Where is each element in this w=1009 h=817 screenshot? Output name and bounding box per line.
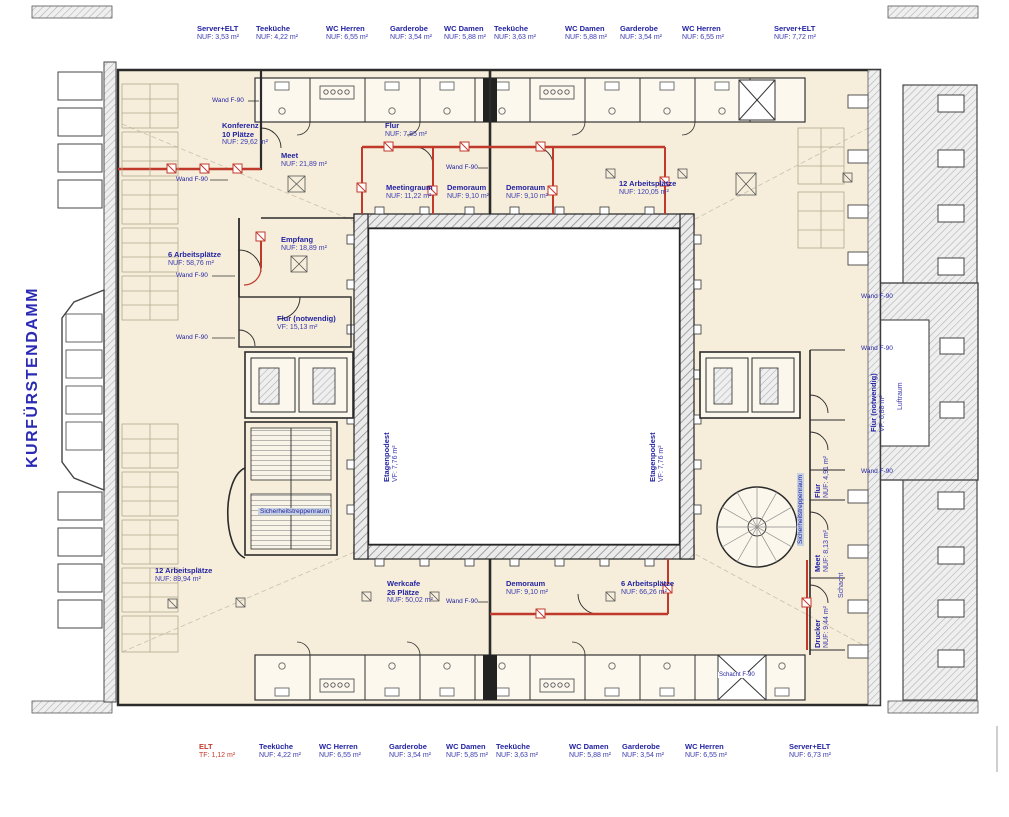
bottom-strip-label-teekueche: TeekücheNUF: 4,22 m² [259, 742, 301, 760]
bottom-strip-label-wc-herren-2: WC HerrenNUF: 6,55 m² [685, 742, 727, 760]
room-label-meet-nw: Meet NUF: 21,89 m² [281, 152, 327, 169]
bottom-strip-label-garderobe-2: GarderobeNUF: 3,54 m² [622, 742, 664, 760]
bottom-strip-label-teekueche-2: TeekücheNUF: 3,63 m² [496, 742, 538, 760]
room-label-etagenpodest-west: Etagenpodest VF: 7,76 m² [383, 432, 400, 482]
floorplan-page: KURFÜRSTENDAMM Server+ELTNUF: 3,53 m² Te… [0, 0, 1009, 817]
top-strip-label-wc-damen-2: WC DamenNUF: 5,88 m² [565, 24, 607, 42]
bottom-strip-label-server-elt: Server+ELTNUF: 6,73 m² [789, 742, 831, 760]
floorplan-drawing [0, 0, 1009, 817]
room-label-12-arbeitsplaetze-nord: 12 Arbeitsplätze NUF: 120,05 m² [619, 180, 676, 197]
room-label-werkcafe: Werkcafe 26 Plätze NUF: 50,02 m² [387, 580, 433, 606]
sicherheitstreppenraum-label-ost: Sicherheitstreppenraum [797, 473, 804, 546]
room-label-schacht: Schacht [838, 573, 847, 598]
wand-f90-label: Wand F-90 [446, 598, 478, 605]
room-label-flur-notwendig-west: Flur (notwendig) VF: 15,13 m² [277, 315, 336, 332]
room-label-12-arbeitsplaetze-sued: 12 Arbeitsplätze NUF: 89,94 m² [155, 567, 212, 584]
courtyard-walls [354, 214, 694, 559]
wand-f90-label: Wand F-90 [212, 97, 244, 104]
room-label-flur-ost: Flur NUF: 4,91 m² [814, 456, 831, 498]
bottom-strip-label-wc-damen-2: WC DamenNUF: 5,88 m² [569, 742, 611, 760]
top-strip-label-garderobe: GarderobeNUF: 3,54 m² [390, 24, 432, 42]
wand-f90-label: Wand F-90 [176, 176, 208, 183]
left-facade [58, 62, 116, 702]
street-label: KURFÜRSTENDAMM [24, 287, 42, 468]
room-label-meetingraum: Meetingraum NUF: 11,22 m² [386, 184, 433, 201]
room-label-demoraum-sued: Demoraum NUF: 9,10 m² [506, 580, 548, 597]
sicherheitstreppenraum-label-west: Sicherheitstreppenraum [258, 508, 331, 515]
wand-f90-label: Wand F-90 [861, 468, 893, 475]
room-label-demoraum-2: Demoraum NUF: 9,10 m² [506, 184, 548, 201]
wand-f90-label: Wand F-90 [861, 345, 893, 352]
room-label-flur-top: Flur NUF: 7,85 m² [385, 122, 427, 139]
room-label-drucker: Drucker NUF: 9,44 m² [814, 606, 831, 648]
bottom-strip-label-wc-herren: WC HerrenNUF: 6,55 m² [319, 742, 361, 760]
wand-f90-label: Wand F-90 [176, 272, 208, 279]
room-label-konferenz: Konferenz 10 Plätze NUF: 29,62 m² [222, 122, 268, 148]
bottom-strip-label-garderobe: GarderobeNUF: 3,54 m² [389, 742, 431, 760]
courtyard-pilasters [347, 207, 701, 566]
wand-f90-label: Wand F-90 [861, 293, 893, 300]
wand-f90-label: Wand F-90 [176, 334, 208, 341]
top-strip-label-teekueche-2: TeekücheNUF: 3,63 m² [494, 24, 536, 42]
room-label-6-arbeitsplaetze-sued: 6 Arbeitsplätze NUF: 66,26 m² [621, 580, 674, 597]
top-strip-label-garderobe-2: GarderobeNUF: 3,54 m² [620, 24, 662, 42]
top-strip-label-wc-herren: WC HerrenNUF: 6,55 m² [326, 24, 368, 42]
schacht-f90-label: Schacht F-90 [718, 672, 756, 678]
bottom-strip-label-wc-damen: WC DamenNUF: 5,85 m² [446, 742, 488, 760]
room-label-6-arbeitsplaetze-west: 6 Arbeitsplätze NUF: 58,76 m² [168, 251, 221, 268]
top-strip-label-server-elt: Server+ELTNUF: 3,53 m² [197, 24, 239, 42]
top-strip-label-server-elt-2: Server+ELTNUF: 7,72 m² [774, 24, 816, 42]
top-strip-label-teekueche: TeekücheNUF: 4,22 m² [256, 24, 298, 42]
room-label-luftraum: Luftraum [897, 382, 906, 410]
top-strip-label-wc-damen: WC DamenNUF: 5,88 m² [444, 24, 486, 42]
room-label-meet-ost: Meet NUF: 8,13 m² [814, 530, 831, 572]
room-label-demoraum-1: Demoraum NUF: 9,10 m² [447, 184, 489, 201]
wand-f90-label: Wand F-90 [446, 164, 478, 171]
top-strip-label-wc-herren-2: WC HerrenNUF: 6,55 m² [682, 24, 724, 42]
room-label-flur-notwendig-ost: Flur (notwendig) VF: 6,88 m² [870, 373, 887, 432]
room-label-etagenpodest-ost: Etagenpodest VF: 7,76 m² [649, 432, 666, 482]
bottom-strip-label-elt: ELTTF: 1,12 m² [199, 742, 235, 760]
room-label-empfang: Empfang NUF: 18,89 m² [281, 236, 327, 253]
